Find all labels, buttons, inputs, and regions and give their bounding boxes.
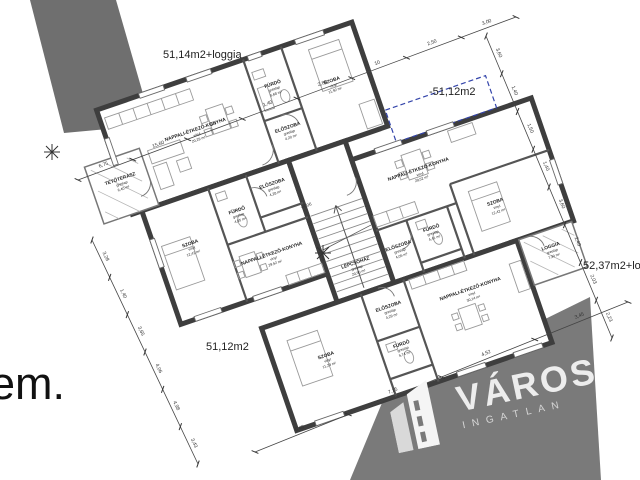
- apartment-area-top: 51,14m2+loggia: [163, 49, 242, 61]
- dim-label-right-7: 2,23: [604, 312, 613, 323]
- floorplan-page: NAPPALI-ÉTKEZŐ-KONYHAvinyl20,29 m²FÜRDŐg…: [0, 0, 640, 480]
- dim-label-right-0: 3,60: [494, 47, 503, 58]
- apartment-area-roof: -51,12m2: [429, 86, 475, 98]
- dim-label-right-6: 2,03: [588, 274, 597, 285]
- dim-label-top-7: 3,00: [481, 18, 492, 27]
- dim-label-right-1: 1,40: [510, 85, 519, 96]
- floor-level-label: em.: [0, 358, 65, 410]
- survey-mark-icon: [315, 245, 331, 261]
- dim-label-top-5: 10: [374, 59, 382, 67]
- dim-label-top-6: 2,50: [427, 38, 438, 47]
- north-arrow-icon: [44, 144, 60, 160]
- apartment-area-right: 52,37m2+loggia: [583, 260, 640, 272]
- apartment-area-bottom: 51,12m2: [206, 341, 249, 353]
